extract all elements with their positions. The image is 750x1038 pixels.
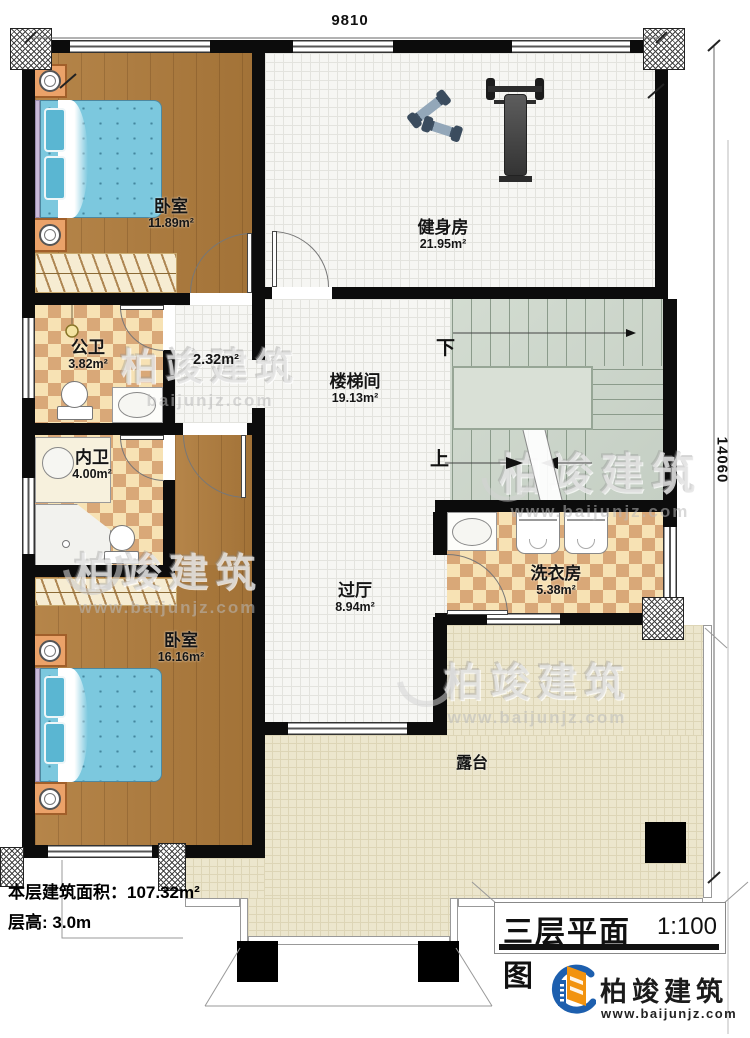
wall — [264, 722, 288, 735]
room-area: 21.95m² — [418, 237, 469, 251]
barbell-icon — [488, 86, 542, 92]
wall — [22, 565, 175, 577]
lamp-icon — [39, 640, 61, 662]
window — [70, 40, 210, 53]
toilet-icon — [104, 551, 139, 564]
bench-foot — [499, 176, 532, 182]
dimension-right: 14060 — [714, 437, 731, 484]
wall — [264, 287, 272, 299]
toilet-icon — [109, 525, 135, 551]
sink-icon — [42, 447, 74, 479]
room-area: 5.38m² — [531, 583, 582, 597]
floor-terrace — [445, 625, 703, 735]
dimension-top: 9810 — [331, 12, 368, 29]
room-label-hall: 过厅 8.94m² — [335, 581, 375, 614]
floor-gym — [265, 53, 655, 287]
stair-flight-upper — [452, 299, 663, 366]
door-leaf — [447, 610, 508, 615]
terrace-railing — [450, 898, 458, 943]
window — [288, 722, 407, 735]
weight-bench — [486, 78, 544, 182]
toilet-icon — [61, 381, 88, 408]
brand-name: 柏竣建筑 — [600, 970, 728, 1009]
column — [645, 822, 686, 863]
sink-icon — [118, 392, 156, 418]
room-name: 健身房 — [418, 218, 469, 237]
window — [22, 478, 35, 554]
stair-down-label: 下 — [436, 333, 455, 360]
room-area: 11.89m² — [148, 216, 194, 230]
column — [418, 941, 459, 982]
room-area: 19.13m² — [330, 391, 381, 405]
pillow — [44, 722, 66, 764]
wall — [252, 435, 265, 858]
wall — [655, 53, 668, 299]
wall — [252, 305, 265, 360]
column-hatch — [643, 28, 685, 70]
washing-machine-icon — [516, 512, 560, 554]
wall — [433, 512, 447, 555]
column-hatch — [642, 597, 684, 640]
room-name: 卧室 — [148, 197, 194, 216]
column-hatch — [10, 28, 52, 70]
toilet-icon — [57, 406, 93, 420]
room-name: 楼梯间 — [330, 372, 381, 391]
floor-height-value: 3.0m — [52, 913, 91, 932]
room-label-gym: 健身房 21.95m² — [418, 218, 469, 251]
lamp-icon — [39, 70, 61, 92]
room-name: 露台 — [456, 755, 488, 773]
room-area: 16.16m² — [158, 650, 205, 664]
nightstand — [33, 218, 67, 252]
stair-flight-side — [593, 366, 663, 430]
sink-icon — [452, 518, 492, 546]
wall — [22, 293, 190, 305]
window — [293, 40, 393, 53]
stair-landing — [452, 366, 593, 430]
window — [48, 845, 152, 858]
wall — [22, 423, 183, 435]
wall — [163, 480, 175, 565]
room-area: 3.82m² — [68, 357, 108, 371]
floor-height-text: 层高: 3.0m — [8, 908, 91, 933]
door-leaf — [272, 231, 277, 287]
room-name: 卧室 — [158, 631, 205, 650]
stair-up-label: 上 — [430, 444, 449, 471]
wall — [435, 500, 677, 512]
lamp-icon — [39, 788, 61, 810]
stair-flight-lower — [452, 430, 593, 500]
room-name: 洗衣房 — [531, 564, 582, 583]
wall — [433, 617, 447, 735]
window — [512, 40, 630, 53]
title-underline — [499, 944, 719, 950]
room-area: 2.32m² — [193, 352, 239, 368]
wall — [163, 350, 175, 423]
column — [237, 941, 278, 982]
shower-drain-icon — [62, 540, 70, 548]
lamp-icon — [39, 224, 61, 246]
door-leaf — [247, 233, 252, 293]
wall — [22, 53, 35, 858]
room-area: 4.00m² — [72, 467, 112, 481]
room-name: 内卫 — [72, 448, 112, 467]
window — [22, 318, 35, 398]
wardrobe — [35, 578, 177, 606]
wall — [22, 845, 48, 858]
floor-height-label: 层高: — [8, 913, 52, 932]
room-name: 公卫 — [68, 338, 108, 357]
wall — [252, 53, 265, 293]
room-label-private-bath: 内卫 4.00m² — [72, 448, 112, 481]
brand-website: www.baijunjz.com — [601, 1006, 737, 1021]
wall — [393, 40, 512, 53]
room-name: 过厅 — [335, 581, 375, 600]
wall — [210, 40, 293, 53]
plan-scale: 1:100 — [657, 913, 717, 941]
room-label-vestibule: 2.32m² — [193, 352, 239, 368]
wall — [332, 287, 668, 299]
door-leaf — [120, 435, 164, 440]
room-label-terrace: 露台 — [456, 755, 488, 773]
room-label-stairwell: 楼梯间 19.13m² — [330, 372, 381, 405]
bench-pad — [504, 94, 527, 176]
brand-logo-icon — [546, 964, 596, 1024]
floor-stair-hall — [264, 299, 450, 722]
nightstand — [33, 782, 67, 815]
floor-plan: 柏竣建筑 baijunjz.com 柏竣建筑 www.baijunjz.com … — [0, 0, 750, 1038]
floor-area-label: 本层建筑面积： — [8, 883, 127, 902]
door-leaf — [120, 305, 164, 310]
door-leaf — [241, 435, 246, 498]
wall — [247, 423, 264, 435]
room-label-public-bath: 公卫 3.82m² — [68, 338, 108, 371]
terrace-railing — [703, 625, 712, 898]
floor-area-text: 本层建筑面积：107.32m² — [8, 878, 200, 903]
room-label-laundry: 洗衣房 5.38m² — [531, 564, 582, 597]
pillow — [44, 108, 66, 152]
nightstand — [33, 634, 67, 667]
room-label-bedroom-1: 卧室 11.89m² — [148, 197, 194, 230]
pillow — [44, 676, 66, 718]
window — [663, 527, 677, 600]
pillow — [44, 156, 66, 200]
terrace-railing — [240, 898, 248, 943]
washing-machine-icon — [564, 512, 608, 554]
room-area: 8.94m² — [335, 600, 375, 614]
floor-area-value: 107.32m² — [127, 883, 200, 902]
wardrobe — [35, 253, 177, 293]
wall — [407, 722, 445, 735]
room-label-bedroom-2: 卧室 16.16m² — [158, 631, 205, 664]
